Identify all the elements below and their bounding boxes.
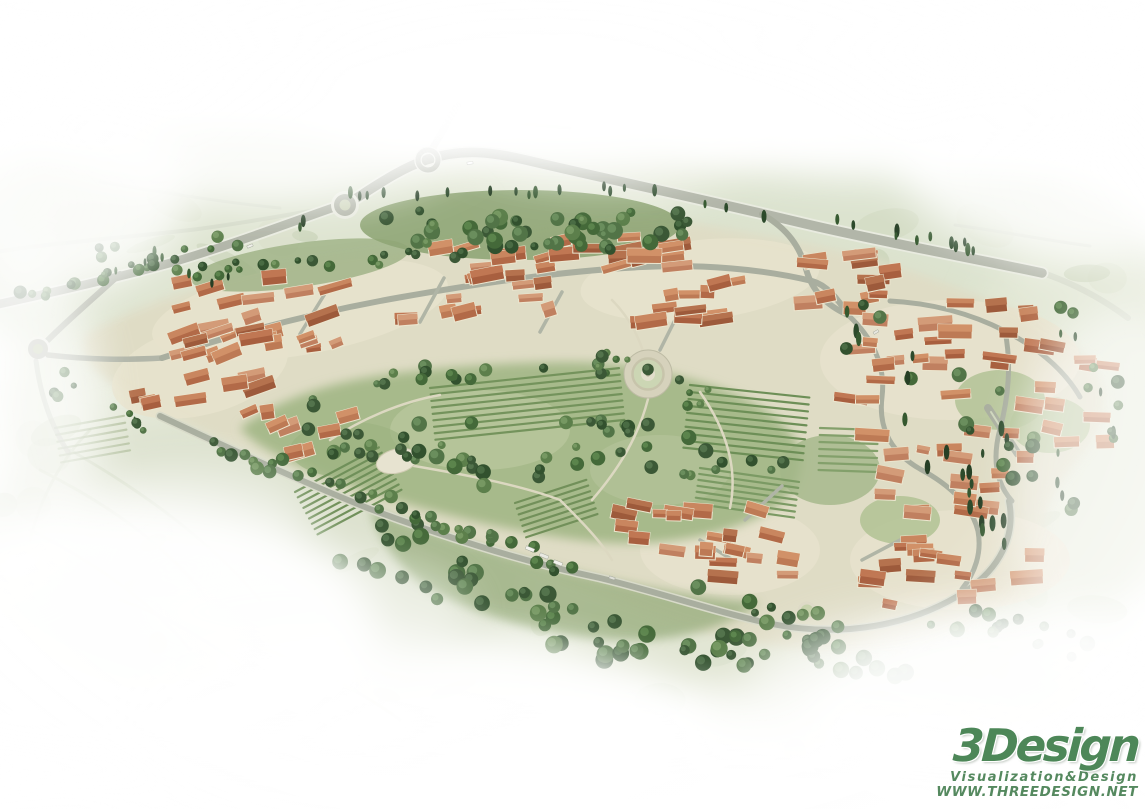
logo-website: WWW.THREEDESIGN.NET [936, 785, 1138, 799]
logo: 3Design Visualization&Design WWW.THREEDE… [936, 722, 1138, 799]
logo-tagline: Visualization&Design [936, 771, 1138, 785]
masterplan-svg [0, 0, 1145, 809]
vignette [0, 0, 1145, 809]
aerial-render: 3Design Visualization&Design WWW.THREEDE… [0, 0, 1145, 809]
logo-wordmark: 3Design [935, 722, 1139, 769]
